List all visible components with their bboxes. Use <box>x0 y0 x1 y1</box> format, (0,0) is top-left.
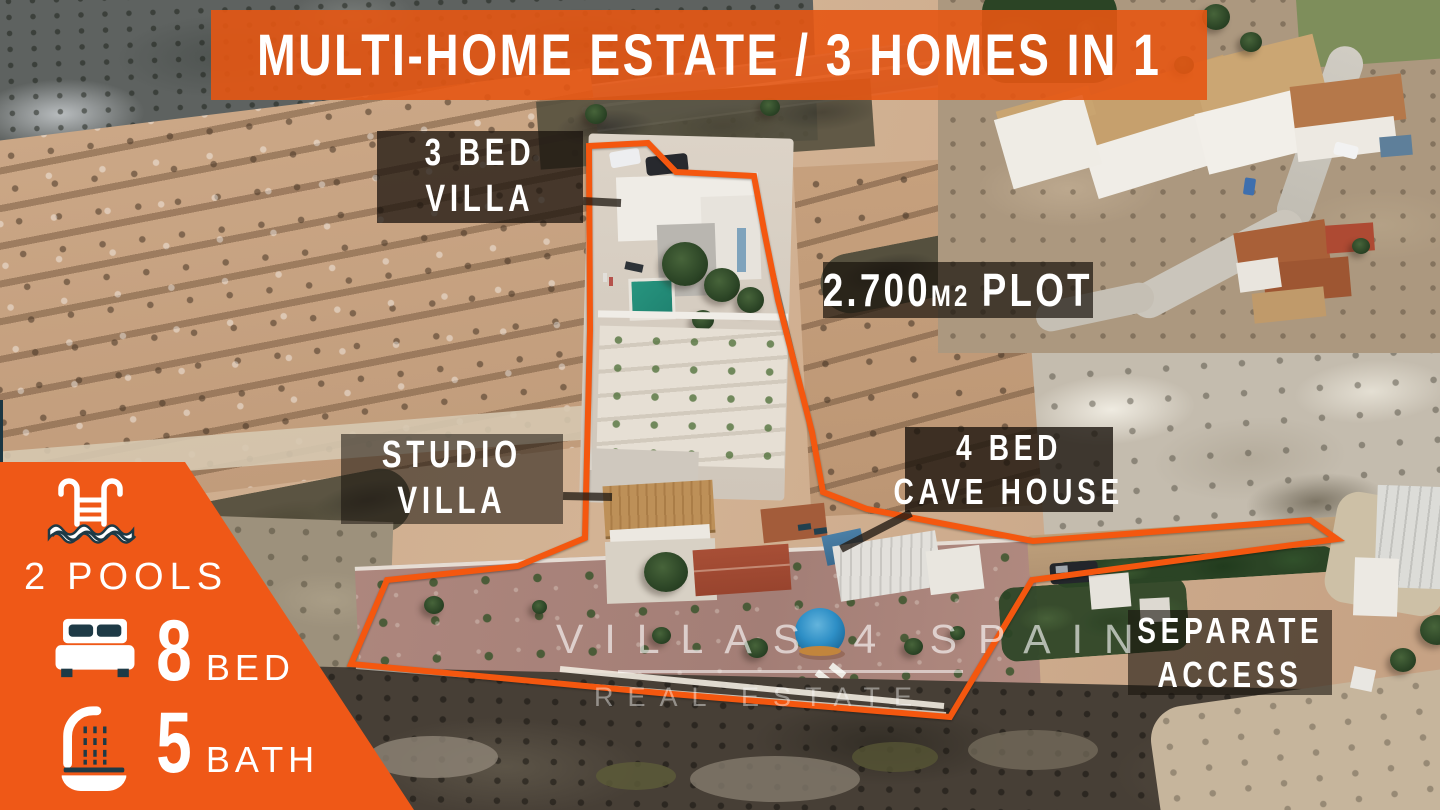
beds-label: BED <box>206 647 295 689</box>
label-plot-size: 2.700M2PLOT <box>823 262 1093 318</box>
label-separate-access: SEPARATE ACCESS <box>1128 610 1332 695</box>
label-text: 4 BED <box>956 426 1062 469</box>
banner-title: MULTI-HOME ESTATE / 3 HOMES IN 1 <box>257 22 1161 89</box>
label-studio-villa: STUDIO VILLA <box>341 434 563 524</box>
plot-suffix: PLOT <box>982 263 1093 317</box>
label-connector-3-bed-villa <box>583 201 621 203</box>
pools-stat: 2 POOLS <box>24 556 228 599</box>
real-estate-flyer: MULTI-HOME ESTATE / 3 HOMES IN 1 3 BED V… <box>0 0 1440 810</box>
label-connector-cave-house <box>841 513 911 549</box>
pools-count: 2 <box>24 556 51 599</box>
label-text: CAVE HOUSE <box>894 470 1124 513</box>
baths-count: 5 <box>156 710 191 777</box>
label-text: STUDIO <box>382 433 522 479</box>
pool-ladder-icon <box>44 474 144 548</box>
beds-stat: 8 BED <box>150 618 295 689</box>
beds-count: 8 <box>156 618 191 685</box>
plot-unit: M2 <box>931 280 971 314</box>
label-text: SEPARATE <box>1137 609 1323 652</box>
label-text: 3 BED <box>425 131 536 177</box>
baths-stat: 5 BATH <box>150 710 319 781</box>
pools-label: POOLS <box>67 556 228 599</box>
plot-value: 2.700 <box>823 263 931 317</box>
label-text: ACCESS <box>1157 653 1302 696</box>
label-connector-studio-villa <box>563 496 612 497</box>
label-4-bed-cave-house: 4 BED CAVE HOUSE <box>905 427 1113 512</box>
label-text: 2.700M2PLOT <box>823 263 1093 317</box>
label-3-bed-villa: 3 BED VILLA <box>377 131 583 223</box>
double-bed-icon <box>48 614 142 682</box>
shower-icon <box>50 700 138 792</box>
label-text: VILLA <box>397 479 506 525</box>
baths-label: BATH <box>206 739 319 781</box>
label-text: VILLA <box>425 177 534 223</box>
title-banner: MULTI-HOME ESTATE / 3 HOMES IN 1 <box>211 10 1207 100</box>
